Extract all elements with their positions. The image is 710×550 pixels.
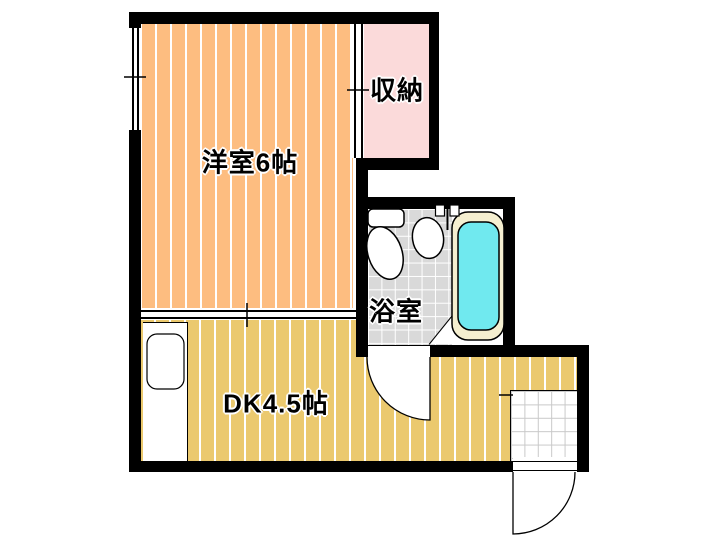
bath-door-opening xyxy=(365,345,430,357)
entry-door-swing-fill xyxy=(513,472,575,534)
dk-label: DK4.5帖 xyxy=(223,384,329,421)
partition-line xyxy=(354,24,356,158)
opening-line xyxy=(513,461,577,462)
kitchen-counter xyxy=(143,322,188,461)
floor-plan: 洋室6帖 収納 浴室 DK4.5帖 xyxy=(0,0,710,550)
wall-center-vertical xyxy=(356,158,368,357)
storage-sliding-partition xyxy=(352,24,364,158)
partition-line xyxy=(361,24,363,158)
western-dk-partition xyxy=(141,308,356,320)
wall-bathroom-top xyxy=(356,197,515,209)
wall-storage-right xyxy=(429,12,439,170)
genkan-entry-tile xyxy=(510,390,577,461)
wall-top xyxy=(129,12,439,24)
western-room-label: 洋室6帖 xyxy=(202,143,298,180)
bathroom-label: 浴室 xyxy=(369,292,423,329)
entry-door xyxy=(513,472,575,534)
wall-left-stub xyxy=(129,12,141,28)
wall-bottom xyxy=(129,461,513,472)
wall-bathroom-right xyxy=(503,197,515,356)
window-line xyxy=(137,28,139,130)
storage-label: 収納 xyxy=(370,71,424,108)
entry-door-opening xyxy=(513,457,577,472)
partition-line xyxy=(141,310,356,312)
window xyxy=(129,28,141,130)
wall-left xyxy=(129,130,141,472)
wall-storage-bottom xyxy=(356,158,439,170)
opening-line xyxy=(513,470,577,471)
wall-right-outer xyxy=(577,345,589,472)
window-line xyxy=(132,28,134,130)
wall-bathroom-bottom xyxy=(430,345,589,357)
partition-line xyxy=(141,317,356,319)
